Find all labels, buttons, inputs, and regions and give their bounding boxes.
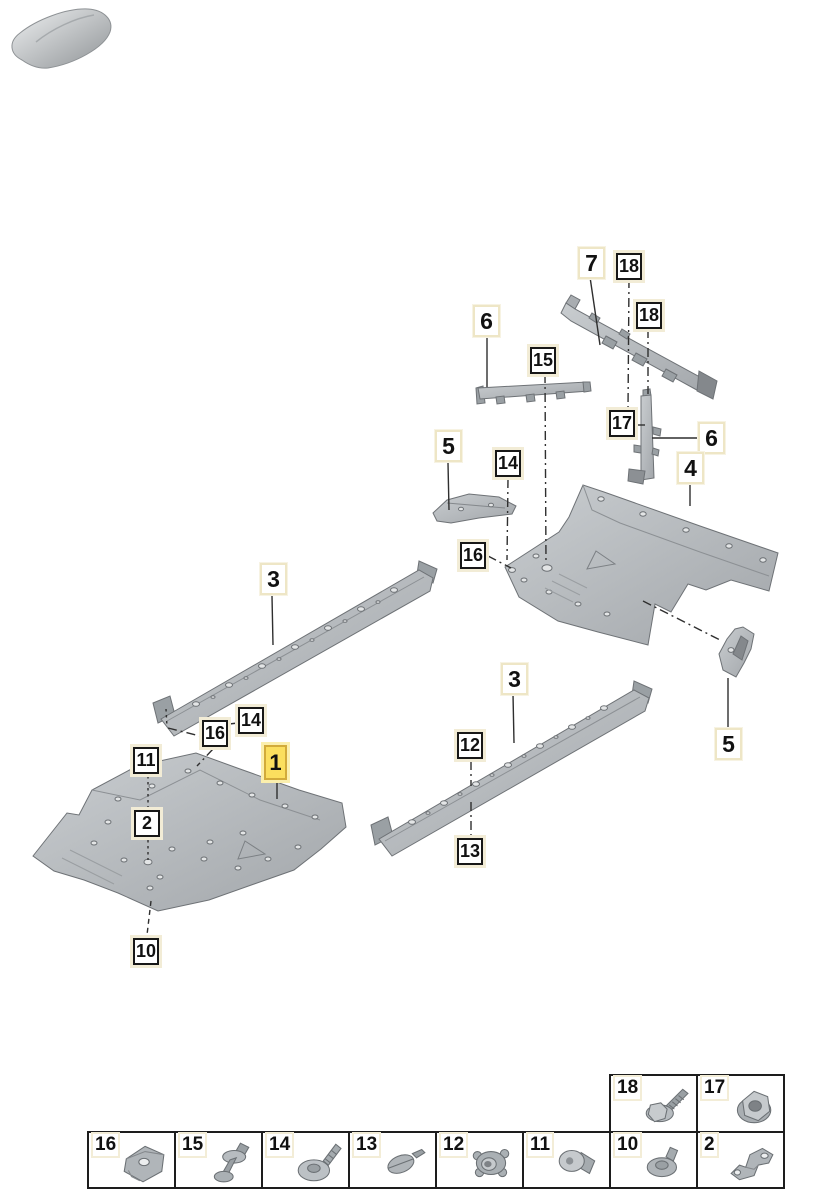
callout-14[interactable]: 14 bbox=[495, 450, 521, 477]
legend-cell-13[interactable]: 13 bbox=[348, 1131, 435, 1189]
fastener-legend: 161514131211102 bbox=[87, 1131, 785, 1189]
metal-bracket-icon bbox=[722, 1138, 782, 1186]
callout-15[interactable]: 15 bbox=[530, 347, 556, 374]
callout-18[interactable]: 18 bbox=[636, 302, 662, 329]
callout-13[interactable]: 13 bbox=[457, 838, 483, 865]
diagram-artwork bbox=[0, 0, 816, 1200]
washer-pin-icon bbox=[635, 1138, 695, 1186]
part-3-rail-left[interactable] bbox=[153, 561, 437, 736]
fastener-legend-top-row: 1817 bbox=[609, 1074, 785, 1131]
callout-14[interactable]: 14 bbox=[238, 707, 264, 734]
callout-11[interactable]: 11 bbox=[133, 747, 159, 774]
part-1-front-panel[interactable] bbox=[33, 753, 346, 911]
part-5-bracket-right[interactable] bbox=[719, 627, 754, 677]
parts-diagram-page: 7181861517651441633141651211121310 1817 … bbox=[0, 0, 816, 1200]
callout-12[interactable]: 12 bbox=[457, 732, 483, 759]
flat-pin-icon bbox=[374, 1138, 434, 1186]
legend-cell-11[interactable]: 11 bbox=[522, 1131, 609, 1189]
callout-5[interactable]: 5 bbox=[715, 728, 742, 760]
part-3-rail-right[interactable] bbox=[371, 681, 652, 856]
callout-1-selected[interactable]: 1 bbox=[264, 745, 287, 780]
clip-nut-icon bbox=[113, 1138, 173, 1186]
callout-4[interactable]: 4 bbox=[677, 452, 704, 484]
legend-cell-2[interactable]: 2 bbox=[696, 1131, 785, 1189]
legend-cell-16[interactable]: 16 bbox=[87, 1131, 174, 1189]
callout-7[interactable]: 7 bbox=[578, 247, 605, 279]
flange-bolt-icon bbox=[635, 1082, 695, 1130]
callout-6[interactable]: 6 bbox=[698, 422, 725, 454]
callout-16[interactable]: 16 bbox=[202, 720, 228, 747]
callout-3[interactable]: 3 bbox=[501, 663, 528, 695]
callout-6[interactable]: 6 bbox=[473, 305, 500, 337]
callout-2[interactable]: 2 bbox=[134, 810, 160, 837]
expander-rivet-icon bbox=[200, 1138, 260, 1186]
legend-cell-18[interactable]: 18 bbox=[609, 1074, 696, 1131]
callout-3[interactable]: 3 bbox=[260, 563, 287, 595]
washer-screw-icon bbox=[287, 1138, 347, 1186]
callout-5[interactable]: 5 bbox=[435, 430, 462, 462]
callout-17[interactable]: 17 bbox=[609, 410, 635, 437]
legend-cell-12[interactable]: 12 bbox=[435, 1131, 522, 1189]
callout-16[interactable]: 16 bbox=[460, 542, 486, 569]
flange-nut-icon bbox=[722, 1082, 782, 1130]
legend-cell-17[interactable]: 17 bbox=[696, 1074, 785, 1131]
callout-18[interactable]: 18 bbox=[616, 253, 642, 280]
grommet-icon bbox=[461, 1138, 521, 1186]
legend-cell-number: 2 bbox=[702, 1134, 717, 1156]
pan-head-screw-icon bbox=[548, 1138, 608, 1186]
legend-cell-15[interactable]: 15 bbox=[174, 1131, 261, 1189]
car-top-view-icon bbox=[12, 9, 111, 68]
part-6-rail-horizontal[interactable] bbox=[476, 382, 591, 404]
part-5-bracket-left[interactable] bbox=[433, 494, 516, 523]
legend-cell-14[interactable]: 14 bbox=[261, 1131, 348, 1189]
callout-10[interactable]: 10 bbox=[133, 938, 159, 965]
legend-cell-10[interactable]: 10 bbox=[609, 1131, 696, 1189]
